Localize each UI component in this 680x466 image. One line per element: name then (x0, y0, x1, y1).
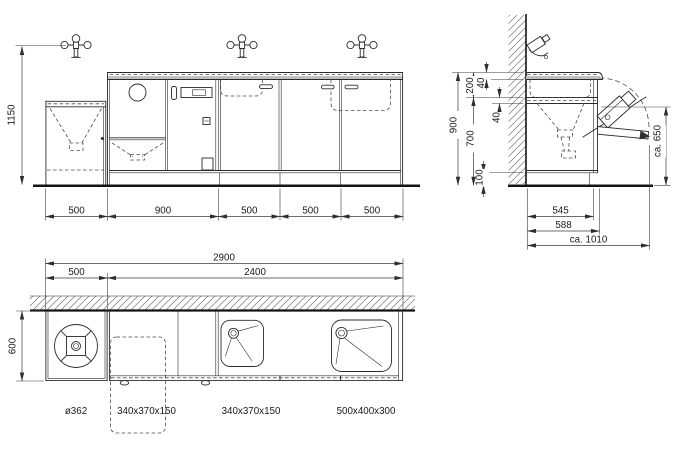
item-label-sink-large: 500x400x300 (337, 406, 396, 417)
dim-label-900: 900 (449, 116, 460, 133)
dim-label-40: 40 (492, 112, 503, 123)
dim-label-500: 500 (68, 267, 85, 278)
left-unit-plan (46, 312, 107, 381)
sink-large (332, 320, 392, 372)
door-handle (260, 85, 273, 89)
bin-sink-unit (110, 80, 168, 171)
item-label-round-bowl: ø362 (65, 406, 87, 417)
dim-label-545: 545 (552, 206, 569, 217)
dim-label-2400: 2400 (244, 267, 266, 278)
front-elevation-view: 1150 500 900 500 500 500 (7, 35, 421, 221)
plan-item-labels: ø362 340x370x150 340x370x150 500x400x300 (65, 406, 396, 417)
wall-faucet-icon (527, 33, 551, 59)
drawing-canvas: 1150 500 900 500 500 500 (0, 0, 680, 461)
side-section-view: 900 200 700 40 40 100 ca. 650 (449, 14, 671, 250)
left-low-cabinet (46, 101, 106, 184)
faucet-icon (227, 35, 257, 58)
side-basin-outline (530, 80, 591, 159)
sink-small (221, 320, 264, 366)
dim-label-588: 588 (555, 220, 572, 231)
spray-unit (597, 89, 637, 128)
dim-label-ca1010: ca. 1010 (570, 235, 608, 246)
dim-label: 500 (364, 206, 381, 217)
counter-top-front (108, 73, 403, 185)
door-sections (218, 80, 390, 185)
main-counter-plan (109, 312, 402, 385)
wall-hatch (509, 15, 526, 184)
fold-out-flap (583, 78, 650, 140)
dim-label-200: 200 (465, 77, 476, 94)
door-knob (101, 137, 104, 140)
dim-label-700: 700 (466, 130, 477, 147)
item-label-sink-small: 340x370x150 (222, 406, 281, 417)
dishwasher-unit (172, 80, 216, 171)
door-handle (345, 85, 358, 89)
dim-label: 900 (155, 206, 172, 217)
dim-label: 500 (302, 206, 319, 217)
tilt-out-bin-outline (111, 337, 166, 433)
dim-height-1150: 1150 (7, 46, 67, 185)
dim-label-1150: 1150 (7, 104, 18, 126)
dim-label-600: 600 (8, 337, 19, 354)
dim-width-chain: 500 900 500 500 500 (46, 189, 404, 221)
door-handle (322, 85, 335, 89)
side-counter (526, 73, 603, 186)
plan-dim-depth: 600 (8, 311, 45, 381)
wall-hatch (30, 296, 415, 310)
dim-label: 500 (68, 206, 85, 217)
faucet-icon (61, 35, 91, 58)
dim-label-ca650: ca. 650 (653, 124, 664, 157)
sink-bowl-outline (331, 80, 391, 111)
dim-label-100: 100 (475, 169, 486, 186)
item-label-bin: 340x370x150 (117, 406, 176, 417)
side-dims-bottom: 545 588 ca. 1010 (528, 145, 650, 250)
round-basin (55, 325, 98, 368)
plan-view: 2900 500 2400 (8, 253, 416, 434)
sink-bowl-outline (221, 80, 263, 97)
dim-label: 500 (241, 206, 258, 217)
dim-label-40: 40 (476, 77, 487, 88)
faucet-icon (347, 35, 377, 58)
dim-label-2900: 2900 (213, 253, 235, 264)
technical-drawing: 1150 500 900 500 500 500 (0, 0, 680, 461)
